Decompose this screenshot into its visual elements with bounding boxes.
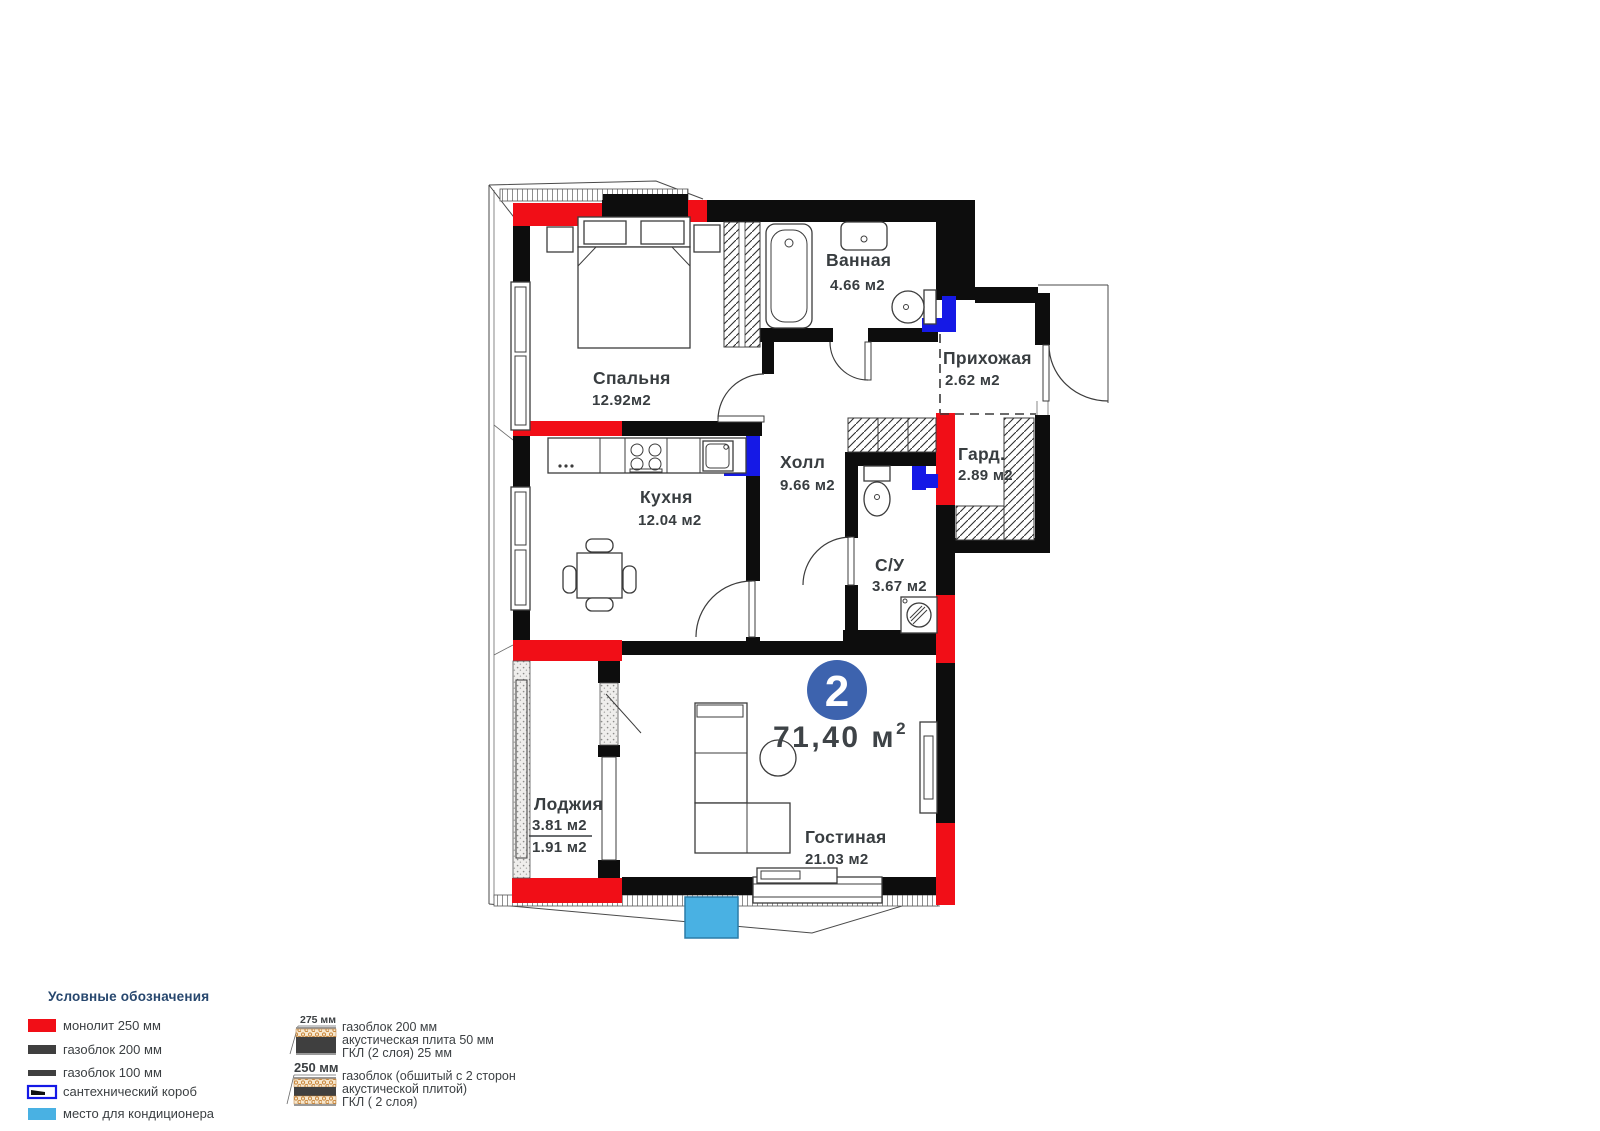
legend-wall-types: 275 мм газоблок 200 мм акустическая плит… <box>287 1014 516 1109</box>
legend-item-monolith: монолит 250 мм <box>63 1018 161 1033</box>
wall-type-275-line2: акустическая плита 50 мм <box>342 1033 494 1047</box>
bathroom-label: Ванная <box>826 250 891 270</box>
bathroom-sink <box>841 222 887 250</box>
wall-type-275-line1: газоблок 200 мм <box>342 1020 437 1034</box>
wall-type-250-line2: акустической плитой) <box>342 1082 467 1096</box>
tv-stand <box>920 722 937 813</box>
unit-badge: 2 <box>807 660 867 720</box>
kitchen-counter <box>548 438 746 473</box>
legend-swatch-gasblock-200 <box>28 1045 56 1054</box>
hall-label: Холл <box>780 452 825 472</box>
legend-swatch-monolith <box>28 1019 56 1032</box>
wall-type-250: 250 мм газоблок (обшитый с 2 сторон акус… <box>287 1060 516 1109</box>
wc-label: С/У <box>875 555 905 575</box>
legend-swatch-ac <box>28 1108 56 1120</box>
wall-type-275: 275 мм газоблок 200 мм акустическая плит… <box>290 1014 494 1060</box>
living-label: Гостиная <box>805 827 886 847</box>
loggia-label: Лоджия <box>534 794 603 814</box>
wall-type-275-thickness: 275 мм <box>300 1014 336 1026</box>
wall-type-250-line3: ГКЛ ( 2 слоя) <box>342 1095 417 1109</box>
bedroom-label: Спальня <box>593 368 671 388</box>
bed <box>547 217 720 348</box>
bedroom-wardrobe <box>724 222 760 347</box>
legend-swatch-sanitary <box>28 1086 56 1098</box>
bathroom-door <box>830 342 871 380</box>
dining-table <box>563 539 636 611</box>
loggia-area-full: 3.81 м2 <box>532 817 587 834</box>
wardrobe-label: Гард. <box>958 444 1005 464</box>
total-area: 71,40 м2 <box>773 719 908 754</box>
bathtub <box>766 224 812 328</box>
washing-machine <box>901 597 937 633</box>
air-conditioner-spot <box>685 897 738 938</box>
legend-item-sanitary: сантехнический короб <box>63 1084 197 1099</box>
wc-toilet <box>864 466 890 516</box>
bathroom-area: 4.66 м2 <box>830 277 885 294</box>
legend-title: Условные обозначения <box>48 989 209 1004</box>
legend-swatch-gasblock-100 <box>28 1070 56 1076</box>
entry-area: 2.62 м2 <box>945 372 1000 389</box>
bathroom-toilet <box>892 290 936 324</box>
bedroom-area: 12.92м2 <box>592 392 651 409</box>
legend-item-ac: место для кондиционера <box>63 1106 215 1121</box>
wall-type-250-line1: газоблок (обшитый с 2 сторон <box>342 1069 516 1083</box>
kitchen-area: 12.04 м2 <box>638 512 702 529</box>
hall-area: 9.66 м2 <box>780 477 835 494</box>
kitchen-sink <box>703 441 733 471</box>
wc-area: 3.67 м2 <box>872 578 927 595</box>
entry-label: Прихожая <box>943 348 1032 368</box>
entrance-door <box>1043 345 1108 401</box>
floor-plan-drawing: 2 71,40 м2 Спальня 12.92м2 Ванная 4.66 м… <box>0 0 1600 1131</box>
wardrobe-area: 2.89 м2 <box>958 467 1013 484</box>
wc-door <box>803 537 854 585</box>
wall-type-275-line3: ГКЛ (2 слоя) 25 мм <box>342 1046 452 1060</box>
legend-item-gasblock-100: газоблок 100 мм <box>63 1065 162 1080</box>
kitchen-door <box>696 581 755 637</box>
legend: Условные обозначения монолит 250 мм газо… <box>28 989 215 1121</box>
living-area: 21.03 м2 <box>805 851 869 868</box>
floor-plan-page: 2 71,40 м2 Спальня 12.92м2 Ванная 4.66 м… <box>0 0 1600 1131</box>
total-area-sup: 2 <box>896 719 908 738</box>
loggia-area-half: 1.91 м2 <box>532 839 587 856</box>
total-area-value: 71,40 м <box>773 721 896 754</box>
kitchen-label: Кухня <box>640 487 693 507</box>
hall-closet <box>848 418 936 452</box>
unit-number: 2 <box>825 667 849 716</box>
bedroom-door <box>718 374 764 422</box>
legend-item-gasblock-200: газоблок 200 мм <box>63 1042 162 1057</box>
wall-type-250-thickness: 250 мм <box>294 1060 339 1075</box>
